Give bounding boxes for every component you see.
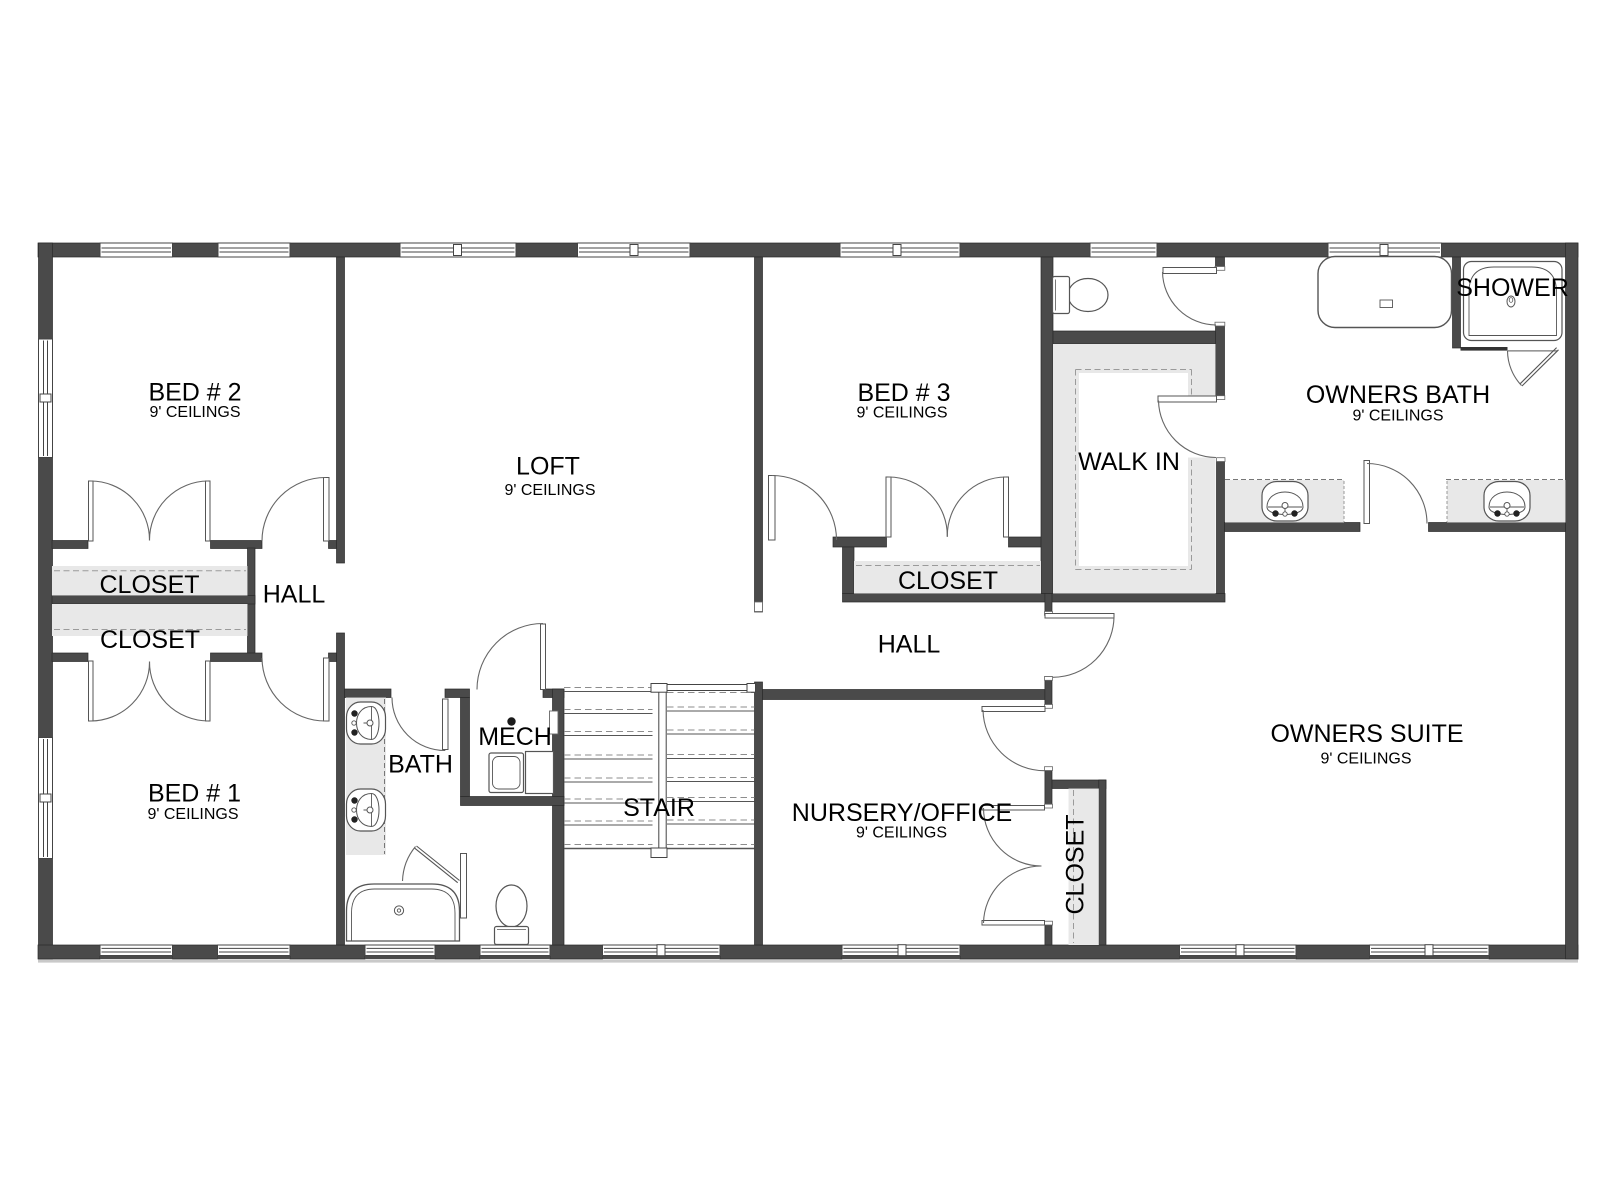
svg-text:BATH: BATH (388, 751, 453, 779)
svg-text:CLOSET: CLOSET (99, 571, 199, 599)
svg-text:CLOSET: CLOSET (1062, 814, 1090, 914)
svg-text:HALL: HALL (263, 581, 326, 609)
svg-text:9' CEILINGS: 9' CEILINGS (149, 404, 240, 421)
svg-text:SHOWER: SHOWER (1456, 274, 1569, 302)
svg-text:WALK IN: WALK IN (1078, 448, 1180, 476)
svg-text:OWNERS BATH: OWNERS BATH (1306, 381, 1490, 409)
svg-text:HALL: HALL (878, 631, 941, 659)
svg-text:STAIR: STAIR (623, 794, 695, 822)
svg-text:9' CEILINGS: 9' CEILINGS (856, 825, 947, 842)
svg-text:9' CEILINGS: 9' CEILINGS (1320, 751, 1411, 768)
svg-text:9' CEILINGS: 9' CEILINGS (504, 482, 595, 499)
svg-text:CLOSET: CLOSET (100, 626, 200, 654)
svg-text:NURSERY/OFFICE: NURSERY/OFFICE (792, 799, 1012, 827)
svg-text:OWNERS SUITE: OWNERS SUITE (1270, 720, 1463, 748)
svg-text:BED # 1: BED # 1 (148, 780, 241, 808)
svg-text:CLOSET: CLOSET (898, 567, 998, 595)
svg-text:9' CEILINGS: 9' CEILINGS (147, 806, 238, 823)
svg-text:MECH: MECH (478, 723, 552, 751)
svg-text:BED # 2: BED # 2 (148, 379, 241, 407)
svg-text:9' CEILINGS: 9' CEILINGS (1352, 408, 1443, 425)
svg-text:BED # 3: BED # 3 (857, 379, 950, 407)
svg-text:LOFT: LOFT (516, 453, 580, 481)
svg-text:9' CEILINGS: 9' CEILINGS (856, 405, 947, 422)
